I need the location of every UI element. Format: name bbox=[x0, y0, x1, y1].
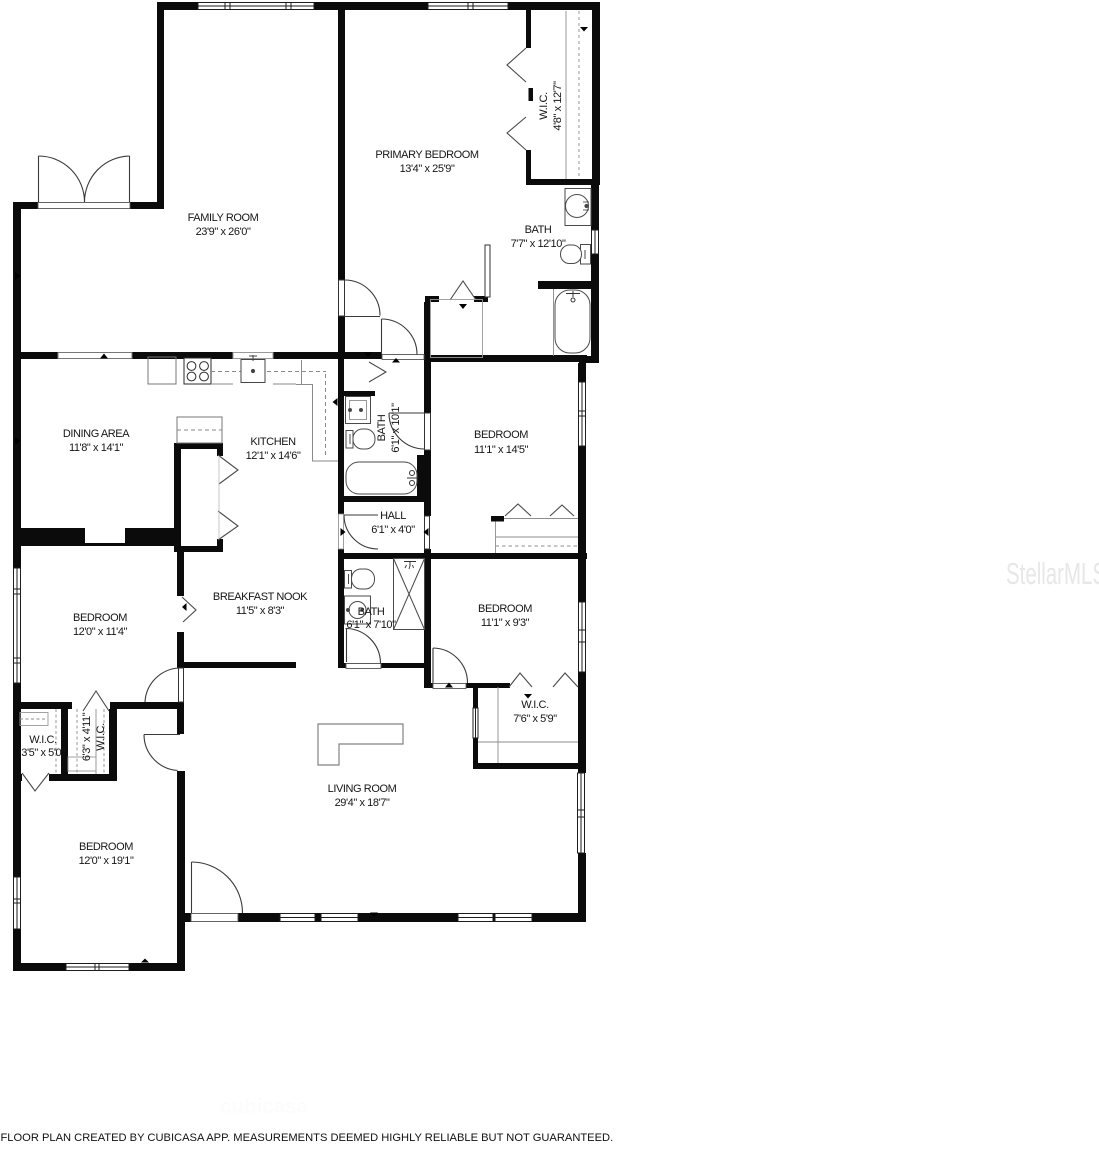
svg-text:7'6" x 5'9": 7'6" x 5'9" bbox=[513, 713, 557, 725]
svg-text:7'7" x 12'10": 7'7" x 12'10" bbox=[511, 238, 566, 250]
svg-text:StellarMLS: StellarMLS bbox=[1006, 556, 1099, 591]
svg-text:6'1" x 7'10": 6'1" x 7'10" bbox=[346, 619, 396, 631]
svg-text:BREAKFAST NOOK: BREAKFAST NOOK bbox=[213, 591, 308, 603]
svg-text:11'1" x 9'3": 11'1" x 9'3" bbox=[481, 617, 530, 629]
svg-text:3'5" x 5'0": 3'5" x 5'0" bbox=[21, 747, 65, 759]
svg-text:BATH: BATH bbox=[376, 414, 388, 441]
svg-text:13'4" x 25'9": 13'4" x 25'9" bbox=[400, 163, 455, 175]
svg-text:FLOOR PLAN CREATED BY CUBICASA: FLOOR PLAN CREATED BY CUBICASA APP. MEAS… bbox=[1, 1132, 614, 1144]
svg-text:12'0" x 11'4": 12'0" x 11'4" bbox=[73, 626, 128, 638]
svg-text:W.I.C.: W.I.C. bbox=[95, 723, 107, 751]
svg-text:11'8" x 14'1": 11'8" x 14'1" bbox=[69, 442, 124, 454]
svg-text:BATH: BATH bbox=[358, 606, 385, 618]
svg-text:PRIMARY BEDROOM: PRIMARY BEDROOM bbox=[375, 149, 479, 161]
svg-text:LIVING ROOM: LIVING ROOM bbox=[328, 783, 397, 795]
svg-text:6'1" x 10'1": 6'1" x 10'1" bbox=[390, 403, 402, 453]
svg-text:11'1" x 14'5": 11'1" x 14'5" bbox=[474, 444, 529, 456]
svg-text:BEDROOM: BEDROOM bbox=[478, 603, 532, 615]
svg-text:BEDROOM: BEDROOM bbox=[73, 612, 127, 624]
svg-text:BEDROOM: BEDROOM bbox=[79, 841, 133, 853]
svg-text:KITCHEN: KITCHEN bbox=[250, 436, 296, 448]
svg-text:W.I.C.: W.I.C. bbox=[521, 699, 549, 711]
svg-text:11'5" x 8'3": 11'5" x 8'3" bbox=[236, 605, 285, 617]
svg-text:12'0" x 19'1": 12'0" x 19'1" bbox=[79, 855, 134, 867]
svg-text:FAMILY ROOM: FAMILY ROOM bbox=[188, 212, 259, 224]
svg-text:12'1" x 14'6": 12'1" x 14'6" bbox=[246, 450, 301, 462]
svg-text:BATH: BATH bbox=[525, 224, 552, 236]
svg-text:29'4" x 18'7": 29'4" x 18'7" bbox=[335, 797, 390, 809]
svg-text:23'9" x 26'0": 23'9" x 26'0" bbox=[196, 226, 251, 238]
svg-text:DINING AREA: DINING AREA bbox=[63, 428, 130, 440]
svg-text:4'8" x 12'7": 4'8" x 12'7" bbox=[552, 81, 564, 131]
svg-text:6'3" x 4'11": 6'3" x 4'11" bbox=[81, 712, 93, 761]
svg-text:6'1" x 4'0": 6'1" x 4'0" bbox=[371, 524, 415, 536]
svg-text:W.I.C.: W.I.C. bbox=[29, 734, 57, 746]
svg-text:cubicasa: cubicasa bbox=[220, 1096, 309, 1118]
svg-text:BEDROOM: BEDROOM bbox=[474, 429, 528, 441]
svg-text:W.I.C.: W.I.C. bbox=[538, 92, 550, 120]
svg-text:HALL: HALL bbox=[380, 510, 406, 522]
